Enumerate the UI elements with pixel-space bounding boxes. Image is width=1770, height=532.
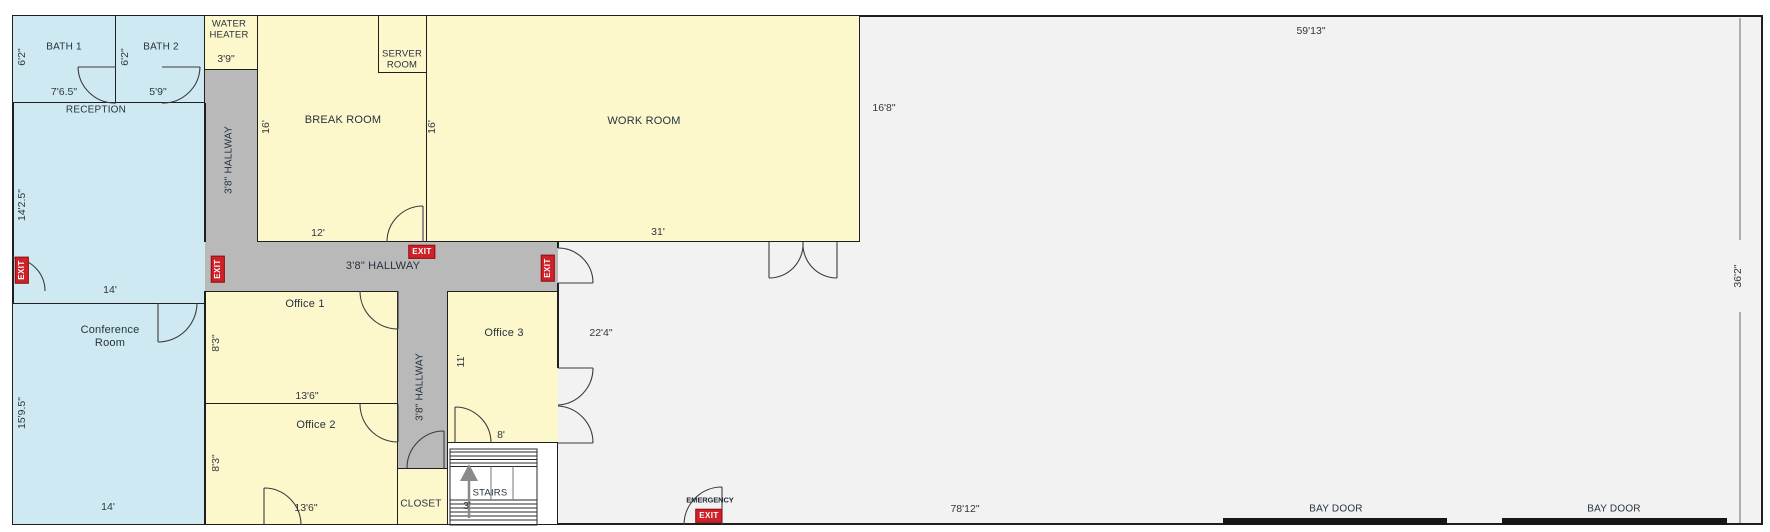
exit-sign-reception: EXIT	[15, 256, 29, 283]
reception-width-dim: 14'	[103, 284, 117, 296]
bath1-height-dim: 6'2"	[16, 48, 28, 65]
water-heater-width-dim: 3'9"	[217, 53, 234, 65]
office1-height-dim: 8'3"	[210, 334, 222, 351]
hallway-main-label: 3'8" HALLWAY	[346, 260, 420, 272]
office2-width-dim: 13'6"	[294, 502, 317, 514]
warehouse-left-dim: 22'4"	[589, 327, 612, 339]
bath2-height-dim: 6'2"	[119, 48, 131, 65]
conference-label: Conference Room	[68, 324, 152, 350]
conference-width-dim: 14'	[101, 501, 115, 513]
bath2-width-dim: 5'9"	[149, 86, 166, 98]
exit-sign-hallway-left: EXIT	[211, 255, 225, 282]
work-room-width-dim: 31'	[651, 226, 665, 238]
hallway-top-label: 3'8" HALLWAY	[224, 126, 235, 194]
exit-sign-emergency: EXIT	[695, 509, 722, 523]
bath1-label: BATH 1	[46, 42, 81, 53]
water-heater-label: WATER HEATER	[206, 19, 252, 42]
work-room-label: WORK ROOM	[607, 115, 680, 127]
floor-plan: BATH 1 6'2" 7'6.5" BATH 2 6'2" 5'9" RECE…	[0, 0, 1770, 532]
office2-label: Office 2	[296, 419, 335, 431]
bay-door-1-label: BAY DOOR	[1309, 504, 1362, 515]
office3-width-dim: 8'	[497, 429, 505, 441]
stairs-label: STAIRS	[473, 488, 508, 499]
hallway-bottom-label: 3'8" HALLWAY	[415, 353, 426, 421]
work-room-left-dim: 16'	[426, 120, 438, 134]
reception-room[interactable]	[12, 103, 205, 303]
server-room-label: SERVER ROOM	[375, 49, 429, 72]
reception-label: RECEPTION	[66, 105, 126, 116]
exit-sign-hallway-mid: EXIT	[408, 245, 435, 259]
warehouse-right-dim: 36'2"	[1732, 264, 1744, 287]
reception-height-dim: 14'2.5"	[16, 189, 28, 221]
work-room[interactable]	[426, 15, 860, 242]
bath2-label: BATH 2	[143, 42, 178, 53]
warehouse-top-dim: 59'13"	[1296, 25, 1325, 37]
bath1-width-dim: 7'6.5"	[51, 86, 77, 98]
office2-height-dim: 8'3"	[210, 454, 222, 471]
office3-label: Office 3	[484, 327, 523, 339]
office3-height-dim: 11'	[455, 355, 467, 368]
break-room-label: BREAK ROOM	[305, 114, 382, 126]
emergency-exit-label: EMERGENCY	[686, 496, 733, 505]
break-room-height-dim: 16'	[260, 120, 272, 134]
bay-door-1[interactable]	[1223, 518, 1447, 525]
break-room-width-dim: 12'	[311, 227, 325, 239]
office1-label: Office 1	[285, 298, 324, 310]
closet-room[interactable]	[398, 468, 447, 525]
bay-door-2-label: BAY DOOR	[1587, 504, 1640, 515]
stairs-area[interactable]	[447, 443, 558, 525]
conference-height-dim: 15'9.5"	[16, 397, 28, 429]
office1-width-dim: 13'6"	[295, 390, 318, 402]
warehouse-bottom-dim: 78'12"	[950, 503, 979, 515]
bay-door-2[interactable]	[1502, 518, 1727, 525]
closet-label: CLOSET	[400, 499, 441, 510]
exit-sign-hallway-right: EXIT	[541, 254, 555, 281]
work-room-right-dim: 16'8"	[872, 102, 895, 114]
stairs-width-dim: 3'	[463, 500, 471, 512]
